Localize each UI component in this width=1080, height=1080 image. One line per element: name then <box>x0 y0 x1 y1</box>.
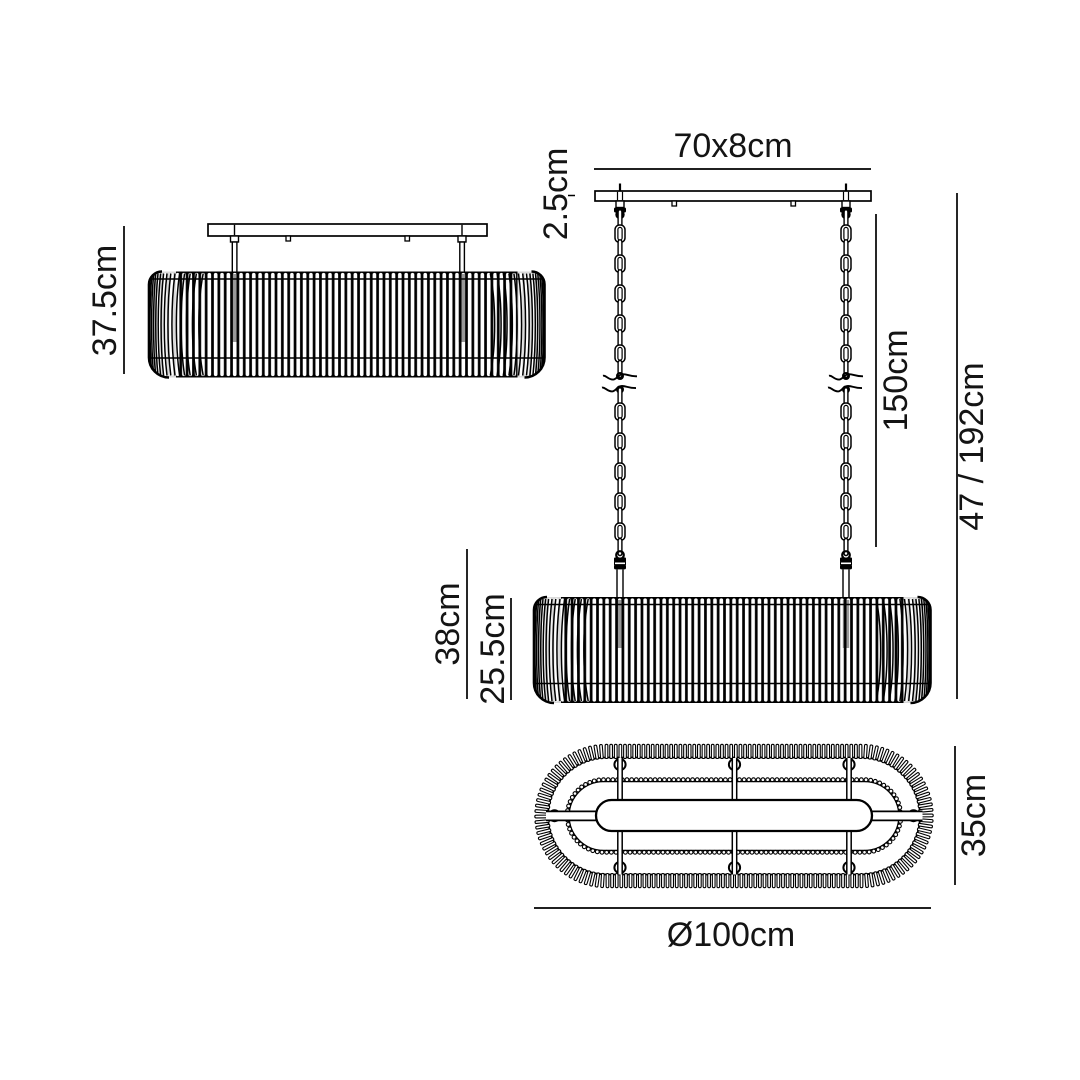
svg-text:38cm: 38cm <box>429 582 467 665</box>
svg-text:2.5cm: 2.5cm <box>537 148 575 241</box>
svg-text:47 / 192cm: 47 / 192cm <box>953 362 991 530</box>
svg-text:25.5cm: 25.5cm <box>474 593 512 705</box>
svg-text:Ø100cm: Ø100cm <box>667 916 796 954</box>
svg-text:37.5cm: 37.5cm <box>86 245 124 357</box>
svg-text:35cm: 35cm <box>955 774 993 857</box>
svg-text:70x8cm: 70x8cm <box>673 127 792 165</box>
svg-text:150cm: 150cm <box>877 329 915 431</box>
